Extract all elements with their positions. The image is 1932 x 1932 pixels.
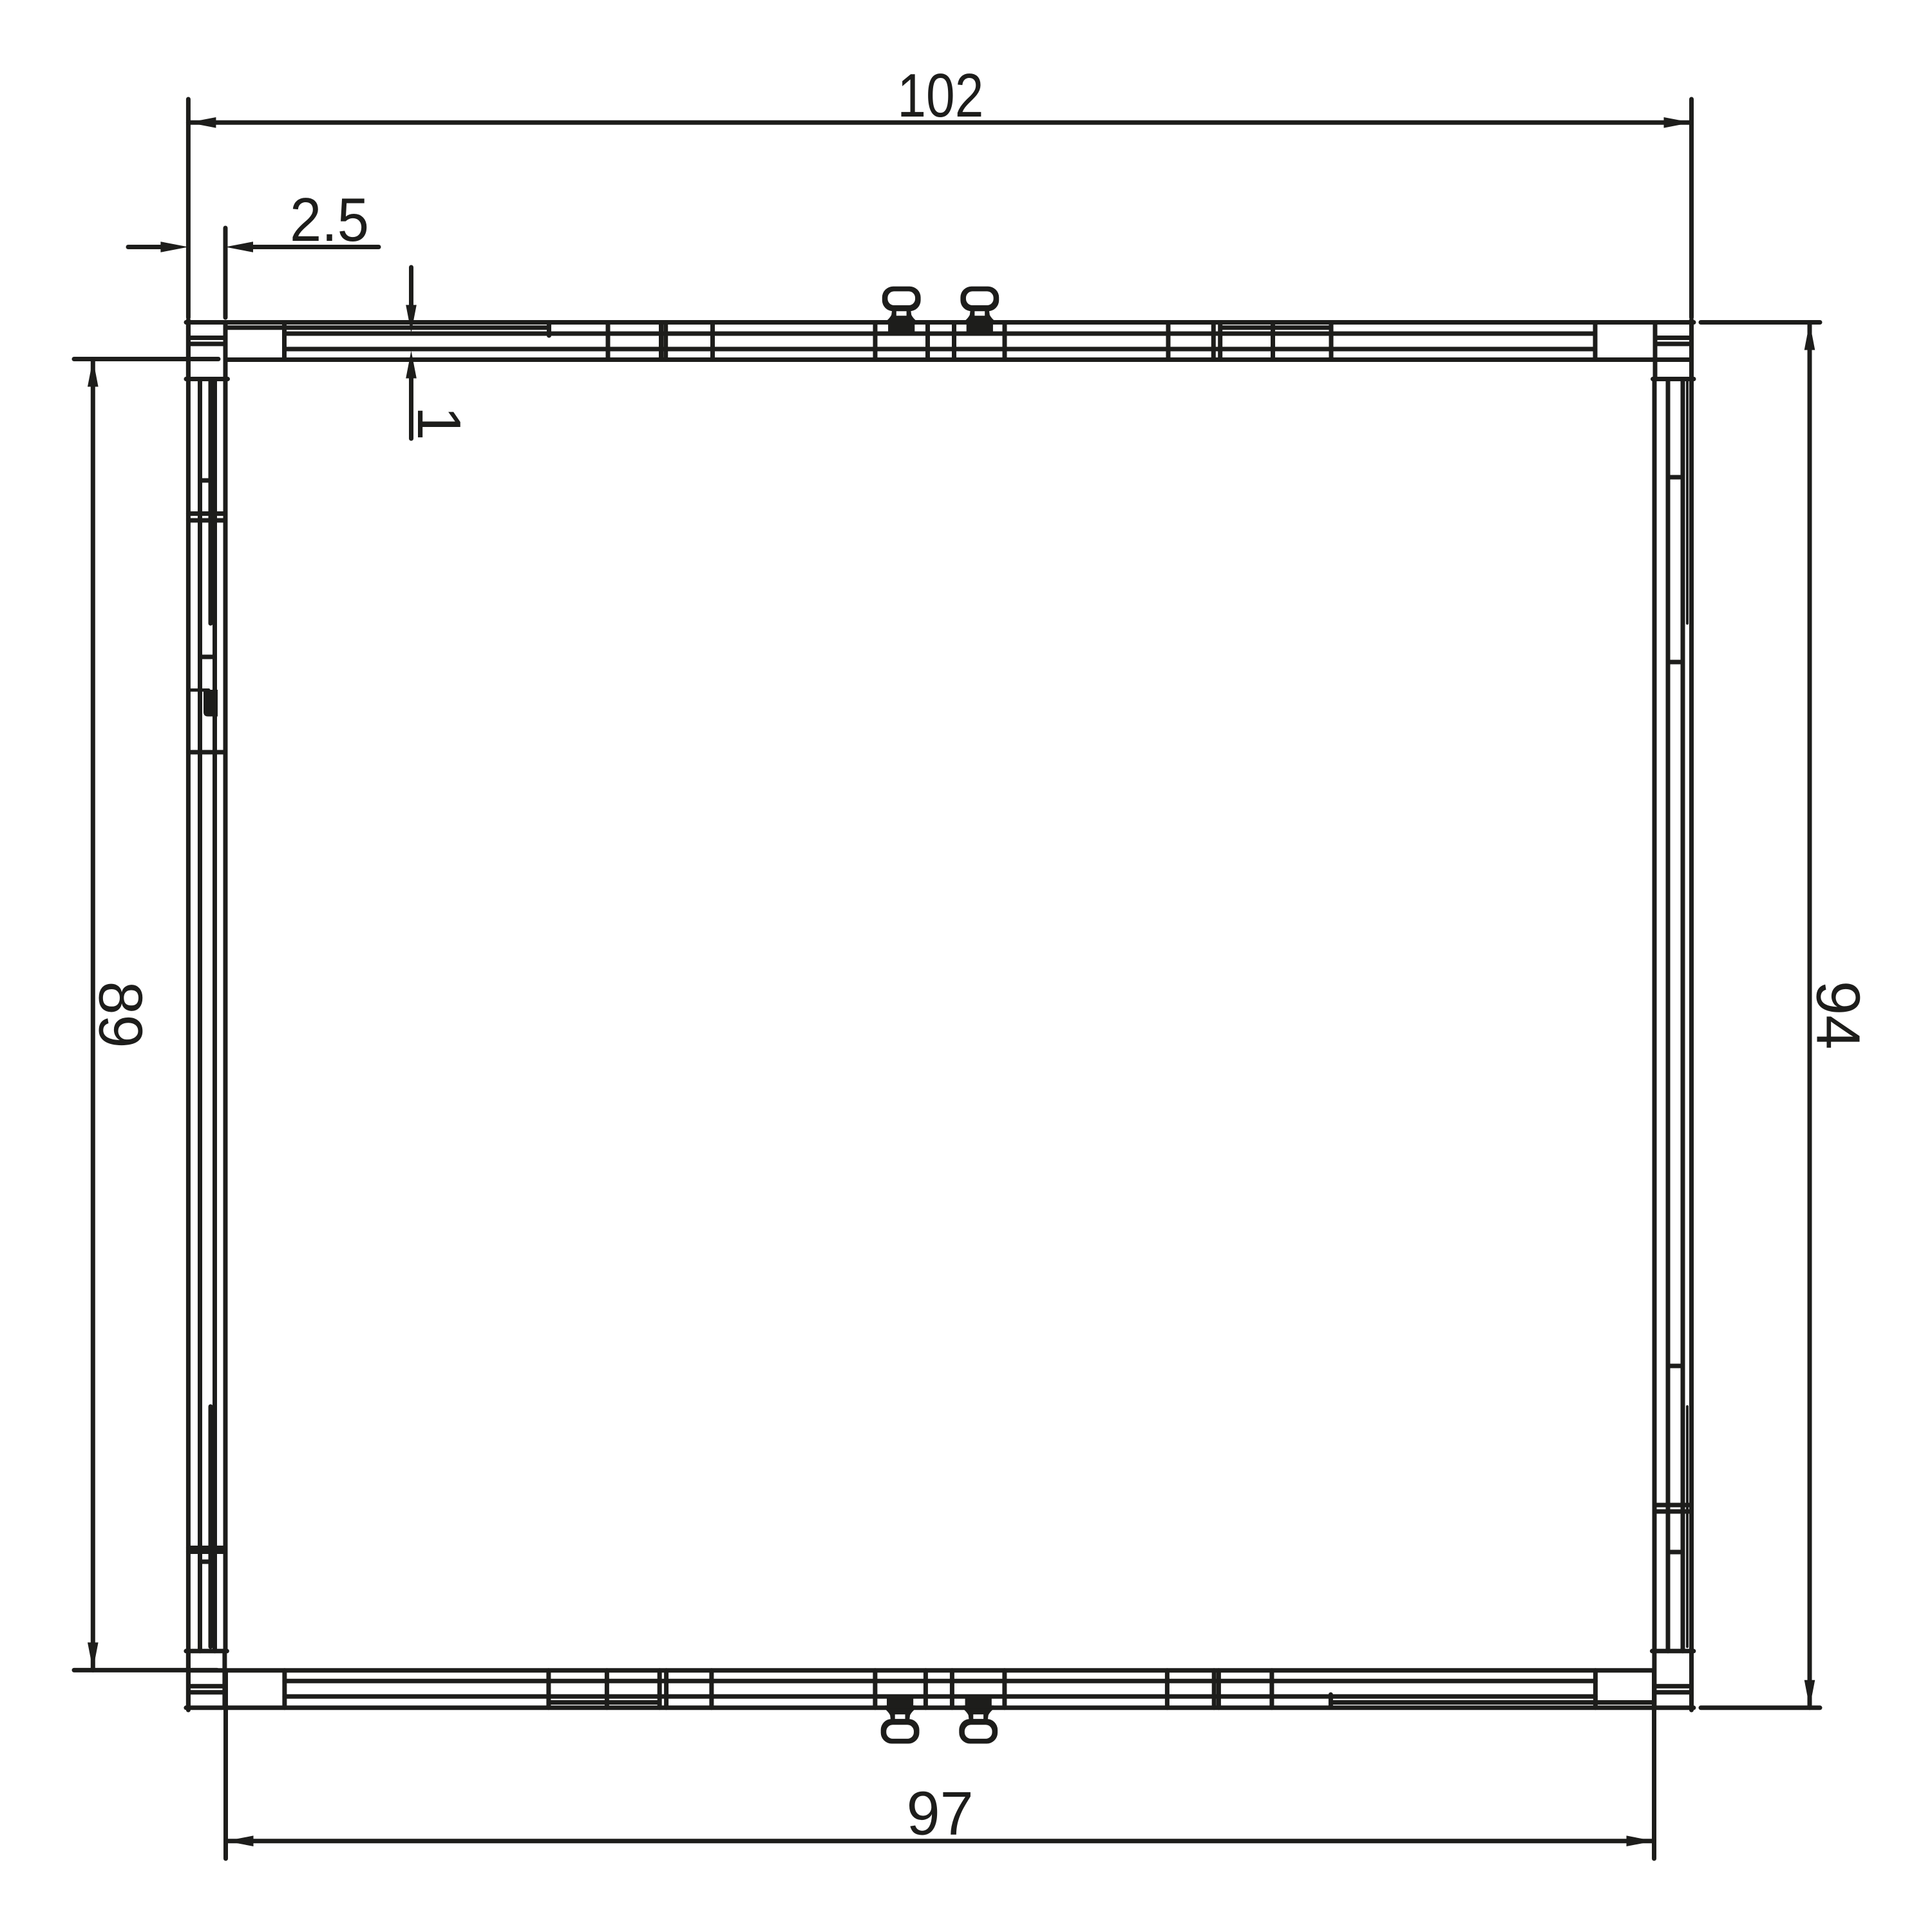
svg-text:89: 89: [86, 981, 155, 1048]
svg-text:102: 102: [897, 61, 983, 130]
svg-text:1: 1: [404, 406, 473, 440]
svg-text:97: 97: [907, 1779, 974, 1848]
svg-text:2.5: 2.5: [290, 185, 369, 254]
svg-text:94: 94: [1803, 981, 1872, 1050]
